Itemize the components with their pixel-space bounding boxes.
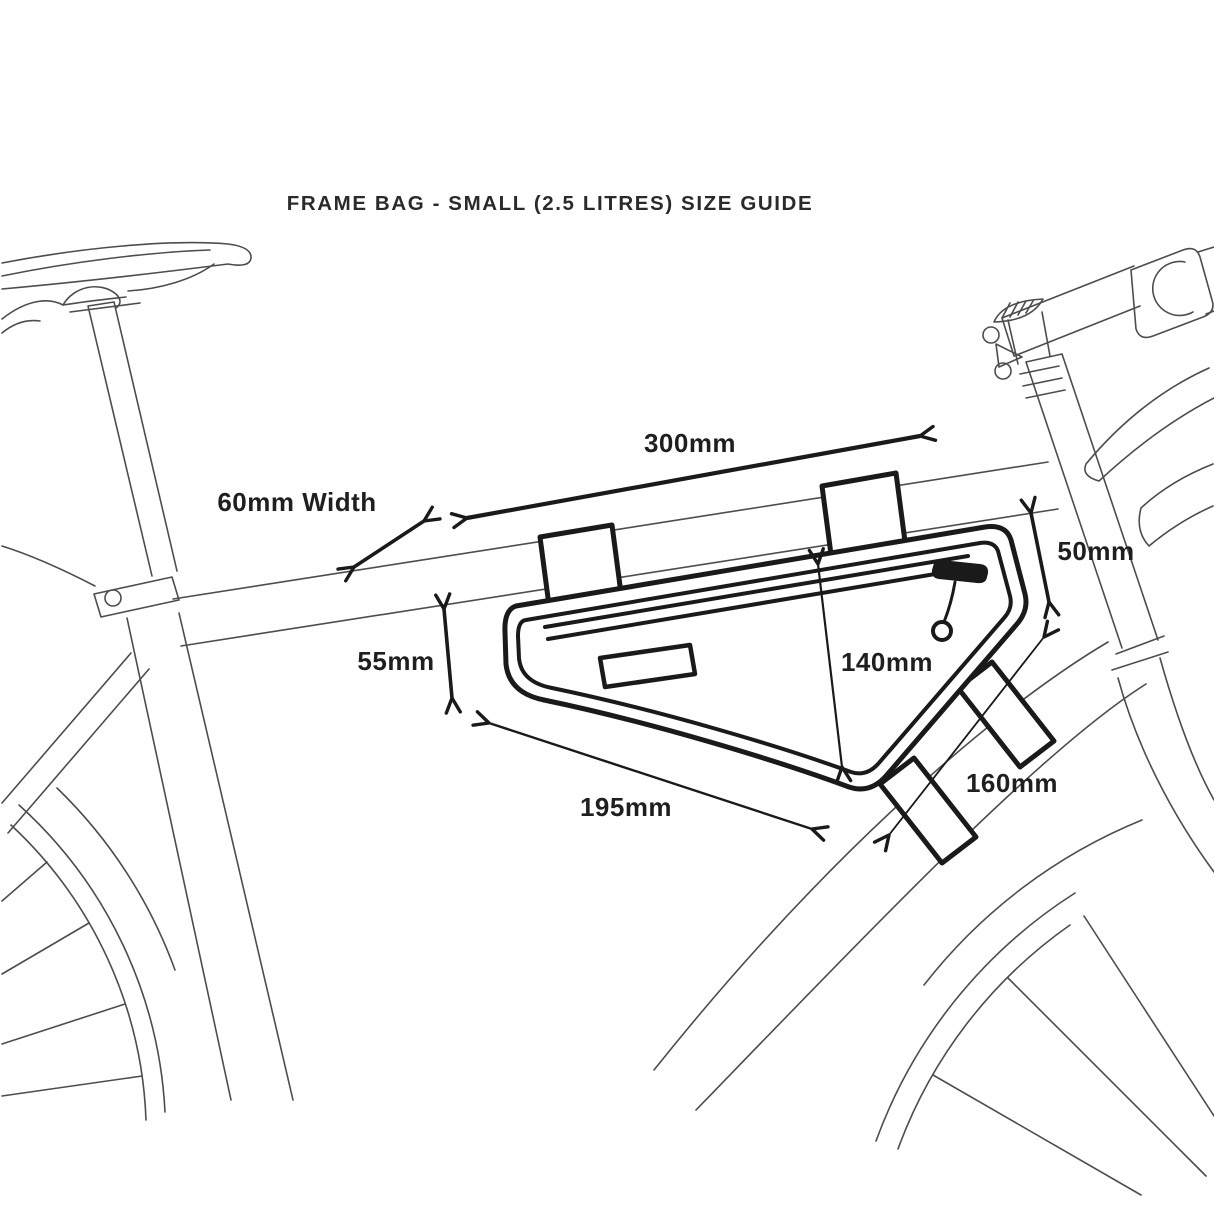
handlebar-drops — [1085, 368, 1214, 546]
diagram-title: FRAME BAG - SMALL (2.5 LITRES) SIZE GUID… — [287, 192, 814, 215]
dimension-arrow-50mm — [1031, 513, 1049, 602]
dimension-label-160mm: 160mm — [966, 768, 1058, 798]
stem — [1002, 247, 1214, 356]
dimension-label-60mm-width: 60mm Width — [217, 487, 376, 517]
dimension-label-140mm: 140mm — [841, 647, 933, 677]
size-guide-page: 300mm 60mm Width 50mm 55mm 140mm 195mm 1… — [0, 0, 1214, 1214]
dimension-label-50mm: 50mm — [1057, 536, 1134, 566]
rear-wheel — [2, 788, 175, 1120]
bottom-strap-lower — [880, 758, 976, 863]
seat-post — [2, 302, 179, 617]
dimension-label-55mm: 55mm — [357, 646, 434, 676]
dimension-arrow-60mm-width — [354, 521, 424, 567]
size-guide-diagram: 300mm 60mm Width 50mm 55mm 140mm 195mm 1… — [0, 0, 1214, 1214]
dimension-label-300mm: 300mm — [644, 428, 736, 458]
fork — [1112, 636, 1214, 872]
saddle — [2, 243, 251, 333]
dimension-label-195mm: 195mm — [580, 792, 672, 822]
dimension-arrow-55mm — [444, 609, 452, 698]
front-wheel — [876, 820, 1214, 1195]
head-tube — [1008, 312, 1158, 648]
